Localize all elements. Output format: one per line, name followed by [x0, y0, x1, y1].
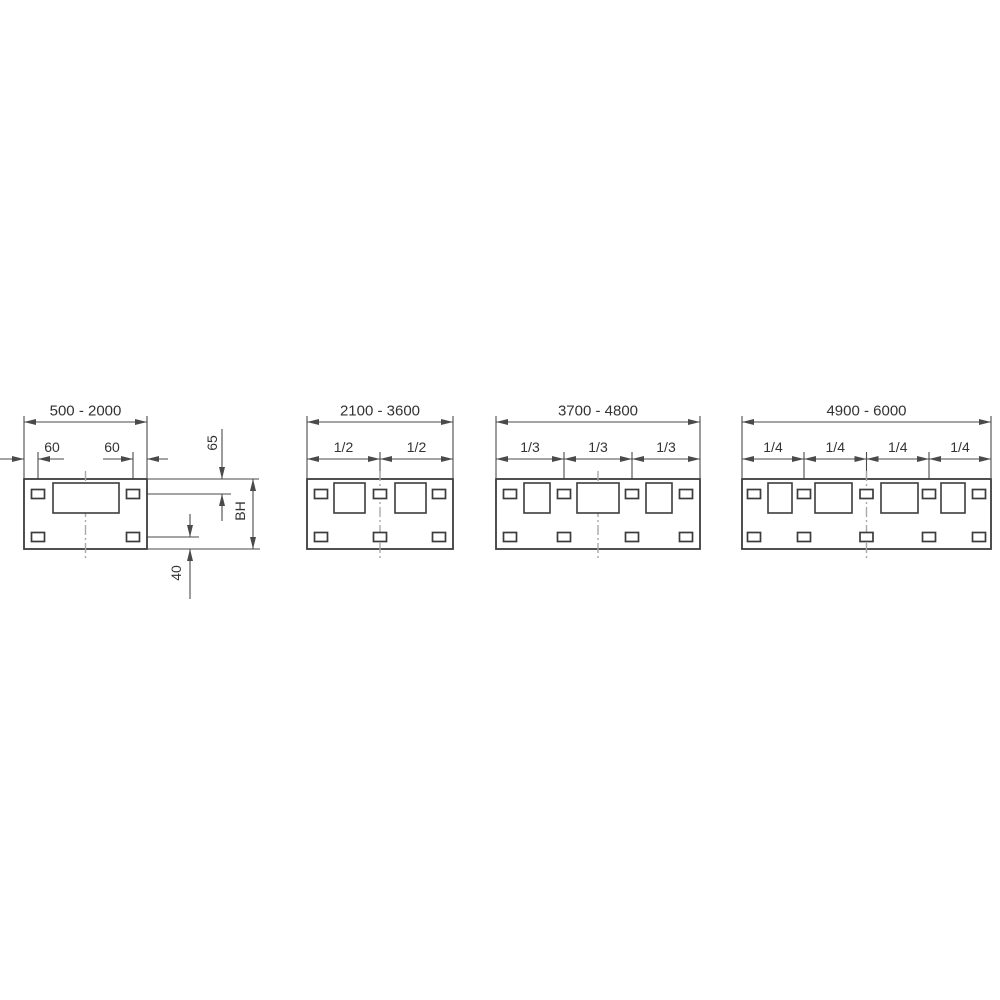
- width-range-label: 3700 - 4800: [558, 403, 638, 420]
- mounting-slot: [315, 490, 328, 499]
- mounting-slot: [748, 490, 761, 499]
- arrowhead: [24, 419, 36, 425]
- mounting-slot: [680, 490, 693, 499]
- fraction-label: 1/2: [334, 439, 354, 455]
- panel-4900-6000: 4900 - 60001/41/41/41/4: [742, 403, 991, 559]
- arrowhead: [187, 549, 193, 561]
- arrowhead: [979, 419, 991, 425]
- mounting-slot: [315, 533, 328, 542]
- arrowhead: [187, 525, 193, 537]
- arrowhead: [147, 456, 159, 462]
- arrowhead: [496, 456, 508, 462]
- arrowhead: [929, 456, 941, 462]
- mounting-slot: [973, 533, 986, 542]
- arrowhead: [742, 456, 754, 462]
- arrowhead: [380, 456, 392, 462]
- mounting-slot: [433, 533, 446, 542]
- side-dimension-label: 40: [168, 565, 184, 581]
- cutout-opening: [577, 483, 619, 513]
- arrowhead: [12, 456, 24, 462]
- mounting-slot: [748, 533, 761, 542]
- panel-3700-4800: 3700 - 48001/31/31/3: [496, 403, 700, 559]
- cutout-opening: [815, 483, 852, 513]
- arrowhead: [792, 456, 804, 462]
- arrowhead: [307, 419, 319, 425]
- mounting-slot: [923, 490, 936, 499]
- mounting-slot: [558, 490, 571, 499]
- width-range-label: 4900 - 6000: [826, 403, 906, 420]
- fraction-label: 1/4: [888, 439, 908, 455]
- mounting-slot: [127, 533, 140, 542]
- arrowhead: [38, 456, 50, 462]
- mounting-slot: [32, 533, 45, 542]
- fraction-label: 1/3: [588, 439, 608, 455]
- arrowhead: [496, 419, 508, 425]
- arrowhead: [250, 479, 256, 491]
- arrowhead: [688, 456, 700, 462]
- fraction-label: 1/4: [950, 439, 970, 455]
- technical-drawing-page: 500 - 2000606065BH402100 - 36001/21/2370…: [0, 0, 1000, 1000]
- offset-label: 60: [44, 439, 60, 455]
- cutout-opening: [334, 483, 365, 513]
- arrowhead: [855, 456, 867, 462]
- fraction-label: 1/2: [407, 439, 427, 455]
- arrowhead: [917, 456, 929, 462]
- arrowhead: [688, 419, 700, 425]
- mounting-slot: [374, 490, 387, 499]
- width-range-label: 2100 - 3600: [340, 403, 420, 420]
- mounting-slot: [973, 490, 986, 499]
- mounting-slot: [860, 533, 873, 542]
- arrowhead: [620, 456, 632, 462]
- arrowhead: [867, 456, 879, 462]
- arrowhead: [441, 419, 453, 425]
- cutout-opening: [395, 483, 426, 513]
- offset-label: 60: [104, 439, 120, 455]
- arrowhead: [564, 456, 576, 462]
- mounting-slot: [32, 490, 45, 499]
- mounting-slot: [504, 490, 517, 499]
- arrowhead: [632, 456, 644, 462]
- mounting-slot: [680, 533, 693, 542]
- fraction-label: 1/3: [656, 439, 676, 455]
- arrowhead: [804, 456, 816, 462]
- width-range-label: 500 - 2000: [50, 403, 122, 420]
- arrowhead: [441, 456, 453, 462]
- cutout-opening: [53, 483, 119, 513]
- fraction-label: 1/4: [763, 439, 783, 455]
- cutout-opening: [881, 483, 918, 513]
- mounting-slot: [558, 533, 571, 542]
- mounting-slot: [504, 533, 517, 542]
- arrowhead: [368, 456, 380, 462]
- arrowhead: [219, 467, 225, 479]
- cutout-opening: [941, 483, 965, 513]
- mounting-slot: [860, 490, 873, 499]
- cutout-opening: [768, 483, 792, 513]
- mounting-dimension-diagram: 500 - 2000606065BH402100 - 36001/21/2370…: [0, 0, 1000, 1000]
- arrowhead: [742, 419, 754, 425]
- arrowhead: [121, 456, 133, 462]
- arrowhead: [307, 456, 319, 462]
- mounting-slot: [127, 490, 140, 499]
- cutout-opening: [524, 483, 550, 513]
- mounting-slot: [433, 490, 446, 499]
- arrowhead: [135, 419, 147, 425]
- mounting-slot: [798, 490, 811, 499]
- arrowhead: [219, 494, 225, 506]
- panel-2100-3600: 2100 - 36001/21/2: [307, 403, 453, 559]
- arrowhead: [979, 456, 991, 462]
- mounting-slot: [626, 533, 639, 542]
- cutout-opening: [646, 483, 672, 513]
- mounting-slot: [374, 533, 387, 542]
- fraction-label: 1/3: [520, 439, 540, 455]
- fraction-label: 1/4: [826, 439, 846, 455]
- mounting-slot: [798, 533, 811, 542]
- side-dimension-label: BH: [232, 501, 248, 520]
- mounting-slot: [923, 533, 936, 542]
- arrowhead: [250, 537, 256, 549]
- side-dimension-label: 65: [204, 435, 220, 451]
- panel-500-2000: 500 - 2000606065BH40: [0, 403, 260, 600]
- mounting-slot: [626, 490, 639, 499]
- arrowhead: [552, 456, 564, 462]
